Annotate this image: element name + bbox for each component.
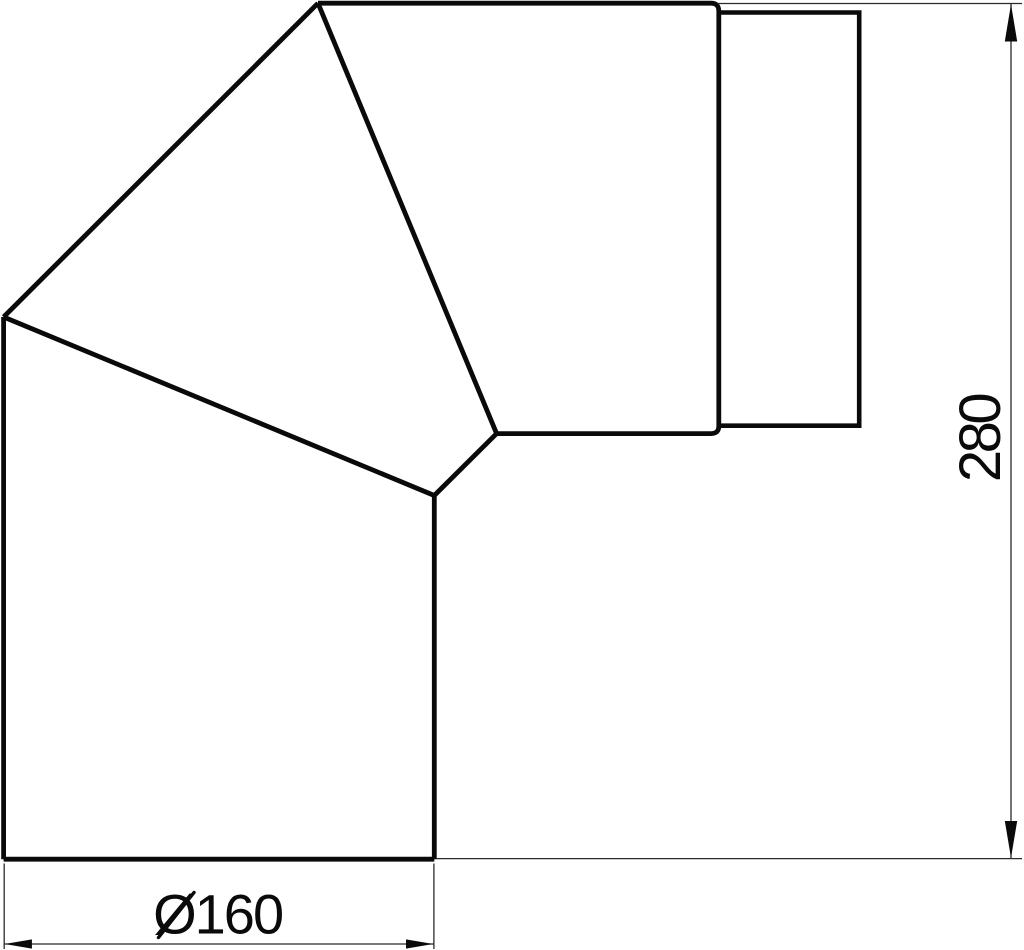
svg-text:Ø160: Ø160 — [153, 883, 282, 946]
svg-text:280: 280 — [948, 395, 1013, 483]
